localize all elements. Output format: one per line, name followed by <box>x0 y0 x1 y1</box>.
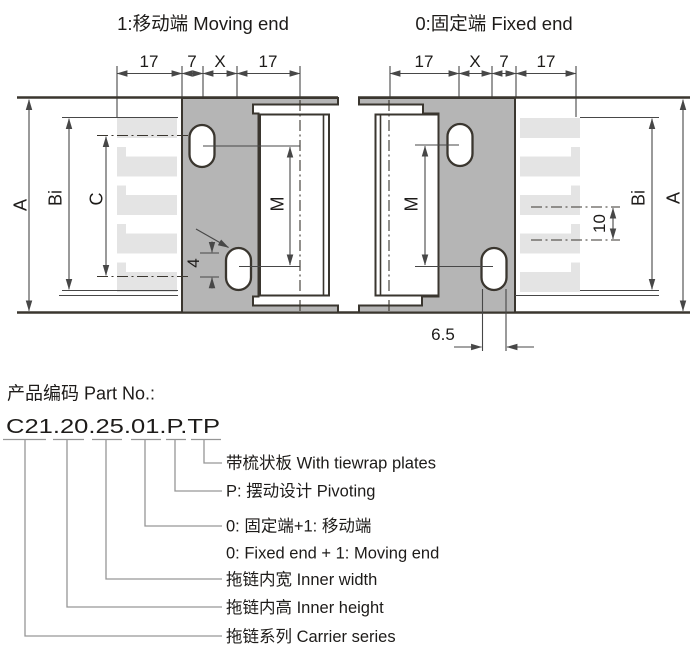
comb-bar <box>520 234 571 254</box>
comb-notch <box>571 254 580 263</box>
part-no-code: C21.20.25.01.P.TP <box>6 415 220 438</box>
comb-notch <box>117 254 126 263</box>
dim-label-a: A <box>663 192 683 204</box>
dim-label-bi: Bi <box>628 190 648 206</box>
comb-bar <box>126 195 177 215</box>
catalog-page: 1:移动端 Moving end 0:固定端 Fixed end 17 7 X … <box>0 0 700 663</box>
comb-notch <box>571 215 580 224</box>
comb-bar <box>520 195 571 215</box>
dim-label-4: 4 <box>184 258 203 267</box>
dim-label-m: M <box>401 197 421 212</box>
callout-label-inner-width: 拖链内宽 Inner width <box>226 570 377 589</box>
dim-label-17b: 17 <box>537 52 556 71</box>
moving-end-title: 1:移动端 Moving end <box>117 13 289 34</box>
part-no-heading: 产品编码 Part No.: <box>7 384 155 404</box>
callout-label-series: 拖链系列 Carrier series <box>226 627 396 646</box>
comb-notch <box>571 138 580 147</box>
dim-label-6-5: 6.5 <box>431 325 455 344</box>
dim-label-17b: 17 <box>259 52 278 71</box>
technical-drawing: 1:移动端 Moving end 0:固定端 Fixed end 17 7 X … <box>0 0 700 663</box>
dim-label-a: A <box>10 199 30 211</box>
dim-label-17: 17 <box>140 52 159 71</box>
comb-bar <box>126 157 177 177</box>
comb-bar <box>520 118 571 138</box>
comb-bar <box>520 157 571 177</box>
comb-bar <box>126 234 177 254</box>
dim-label-17: 17 <box>415 52 434 71</box>
dim-label-c: C <box>86 193 106 206</box>
comb-bar <box>126 272 177 292</box>
background <box>0 0 700 663</box>
slot-hole-bottom-left <box>226 248 251 290</box>
comb-notch <box>117 215 126 224</box>
comb-notch <box>571 177 580 186</box>
dim-label-x: X <box>469 52 480 71</box>
dim-label-x: X <box>214 52 225 71</box>
comb-bar <box>520 272 571 292</box>
fixed-end-title: 0:固定端 Fixed end <box>415 13 572 34</box>
comb-notch <box>117 177 126 186</box>
dim-label-bi: Bi <box>45 190 65 206</box>
dim-label-m: M <box>267 197 287 212</box>
slot-hole-bottom-right <box>482 248 507 290</box>
dim-label-7: 7 <box>499 52 508 71</box>
callout-label-end-type-en: 0: Fixed end + 1: Moving end <box>226 545 439 563</box>
dim-label-7: 7 <box>187 52 196 71</box>
callout-label-tiewrap: 带梳状板 With tiewrap plates <box>226 454 436 473</box>
callout-label-end-type: 0: 固定端+1: 移动端 <box>226 517 371 536</box>
callout-label-pivoting: P: 摆动设计 Pivoting <box>226 482 375 501</box>
callout-label-inner-height: 拖链内高 Inner height <box>226 598 384 617</box>
comb-notch <box>117 138 126 147</box>
dim-label-10: 10 <box>590 214 609 233</box>
